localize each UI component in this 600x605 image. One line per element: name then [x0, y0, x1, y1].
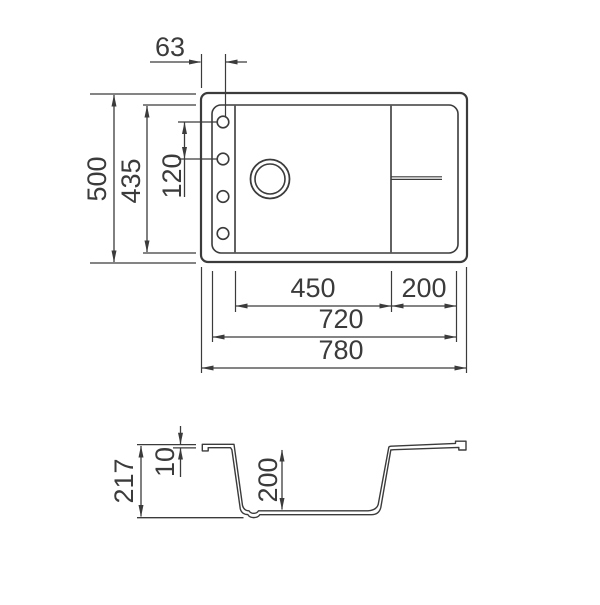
dim-label-63: 63 [155, 32, 185, 62]
tap-hole [217, 153, 229, 165]
dim-label-435: 435 [116, 158, 146, 203]
dim-hole-spacing: 120 [157, 122, 217, 199]
dim-label-217: 217 [109, 458, 139, 503]
dim-bowl-width: 450 [236, 271, 392, 312]
sink-outer-outline [201, 93, 467, 262]
drain-outer-ring [251, 160, 290, 199]
dim-label-200-side: 200 [253, 457, 283, 502]
dim-label-500: 500 [82, 156, 112, 201]
dim-rim-thickness: 10 [150, 426, 196, 477]
side-view [137, 441, 466, 518]
dim-bowl-depth: 200 [253, 450, 283, 510]
dim-label-120: 120 [157, 153, 187, 198]
dim-label-200-top: 200 [401, 273, 446, 303]
top-view [201, 93, 467, 262]
sink-drawing-svg: 63 500 435 120 450 200 720 [0, 0, 600, 600]
dim-drainer-width: 200 [392, 273, 456, 306]
tap-hole [217, 228, 229, 240]
tap-hole [217, 191, 229, 203]
sink-section-profile [202, 441, 466, 517]
dim-label-720: 720 [318, 304, 363, 334]
dim-label-10: 10 [150, 447, 180, 477]
dim-label-450: 450 [290, 273, 335, 303]
tap-hole [217, 116, 229, 128]
drain-inner-ring [255, 164, 285, 194]
technical-drawing-page: 63 500 435 120 450 200 720 [0, 0, 600, 600]
dim-label-780: 780 [318, 335, 363, 365]
